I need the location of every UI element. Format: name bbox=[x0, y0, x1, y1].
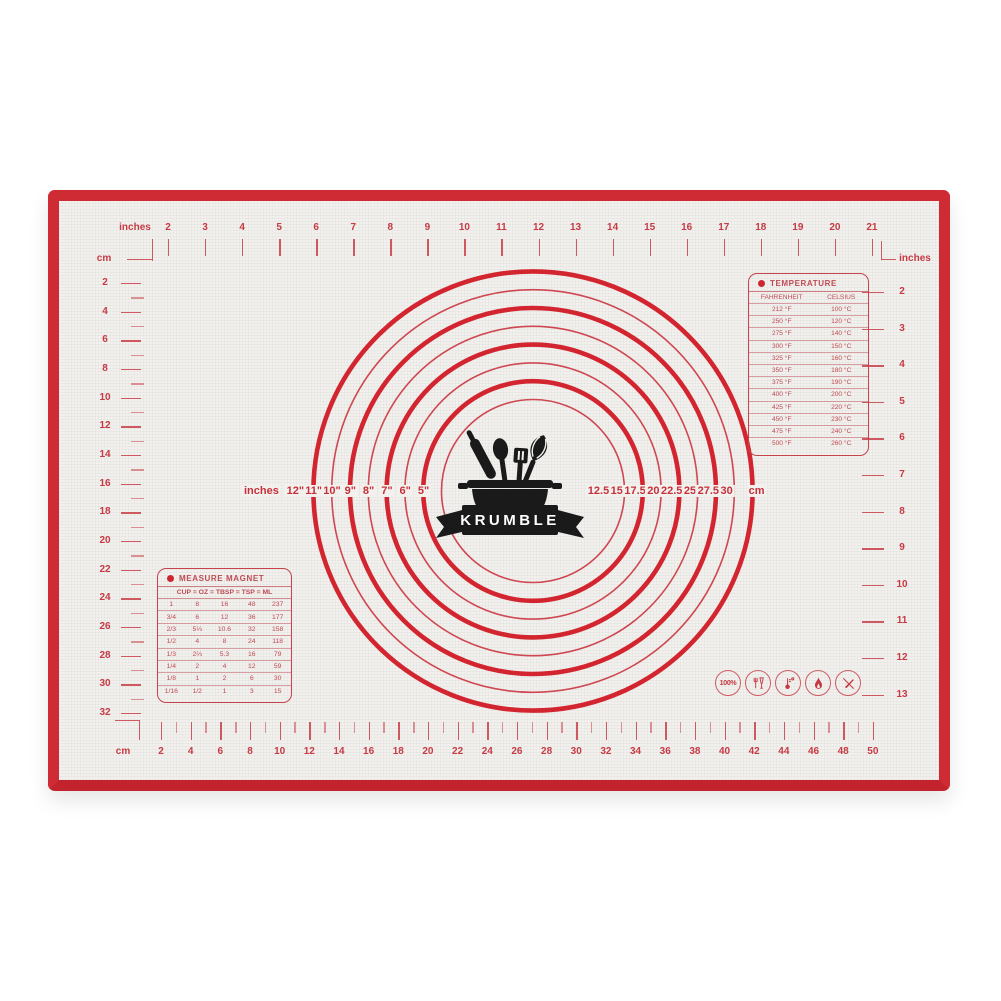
product-photo: inches12"11"10"9"8"7"6"5"12.51517.52022.… bbox=[0, 0, 1001, 1001]
feature-icons: 100% bbox=[59, 201, 939, 780]
baking-mat: inches12"11"10"9"8"7"6"5"12.51517.52022.… bbox=[48, 190, 950, 791]
thermometer-icon bbox=[775, 670, 801, 696]
mat-surface: inches12"11"10"9"8"7"6"5"12.51517.52022.… bbox=[59, 201, 939, 780]
100-percent-icon: 100% bbox=[715, 670, 741, 696]
flame-icon bbox=[805, 670, 831, 696]
food-safe-icon bbox=[745, 670, 771, 696]
no-knife-icon bbox=[835, 670, 861, 696]
icon-label: 100% bbox=[720, 680, 737, 687]
